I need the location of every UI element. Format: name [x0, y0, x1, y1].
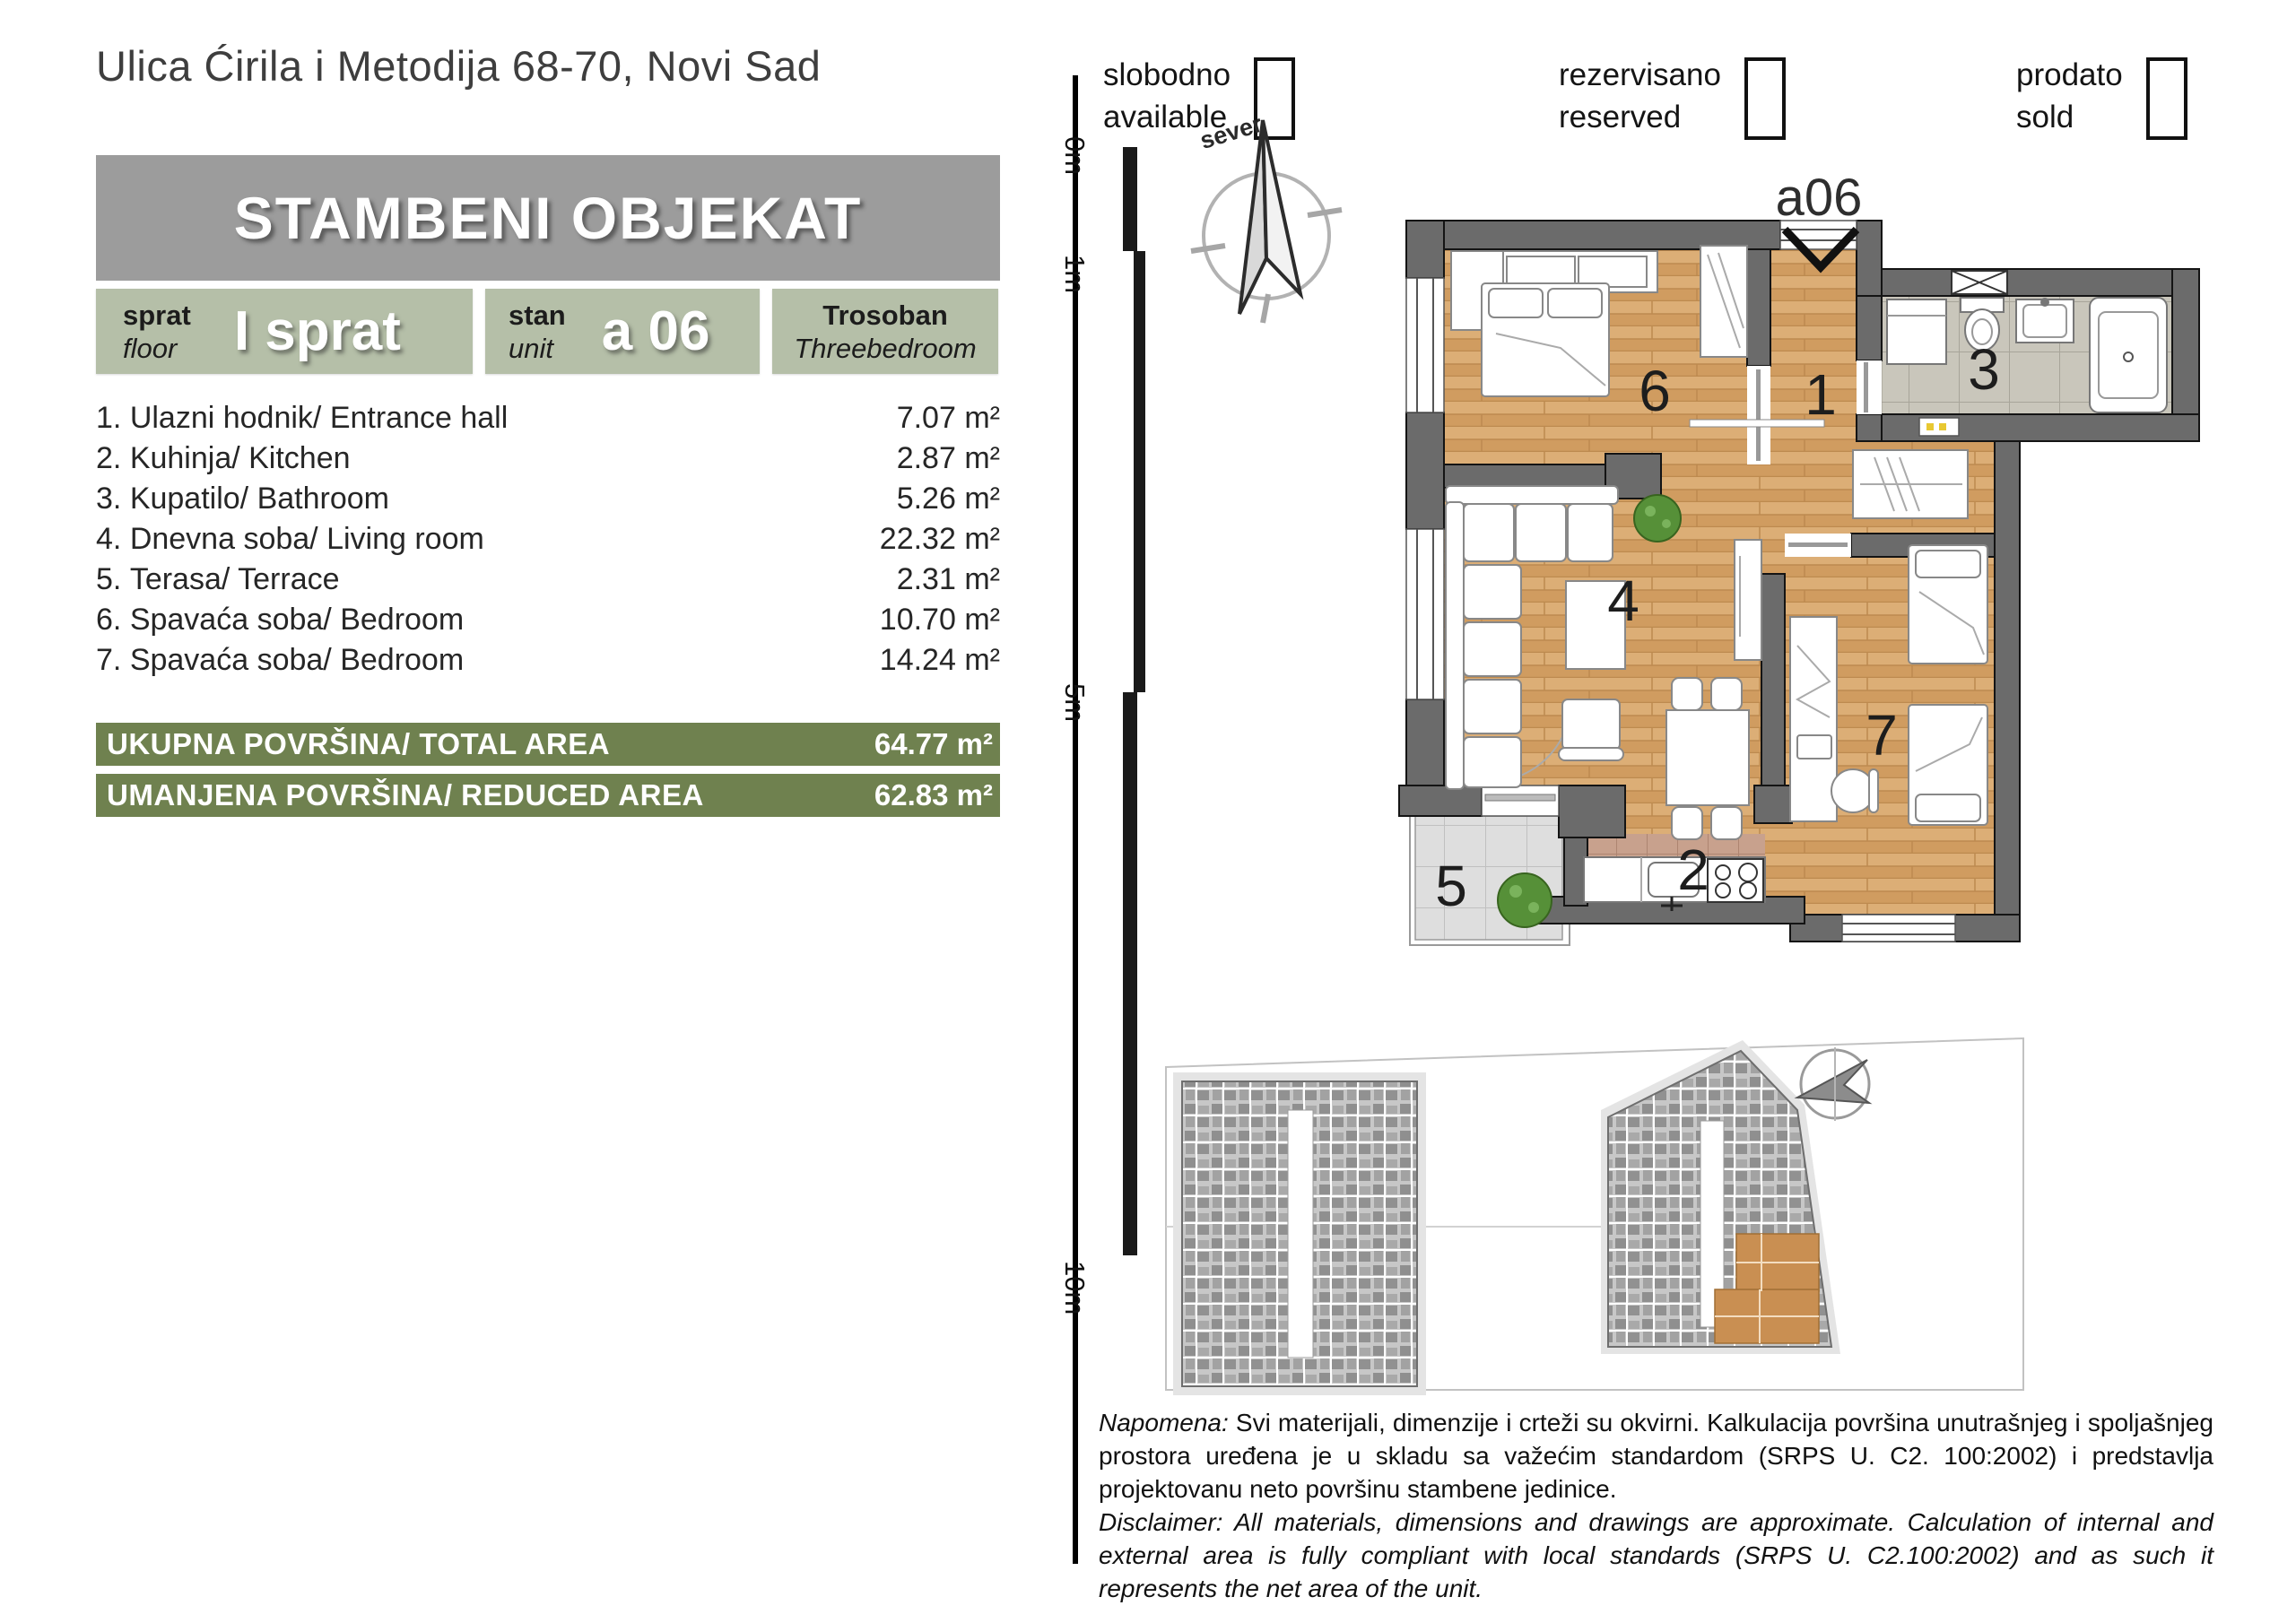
type-badge: Trosoban Threebedroom [772, 289, 998, 374]
floor-plan: a06 1 2 3 4 5 6 7 [1381, 166, 2224, 973]
ruler-bar-segment [1134, 251, 1145, 692]
disclaimer-sr: Napomena: Svi materijali, dimenzije i cr… [1099, 1406, 2213, 1506]
reduced-area-bar: UMANJENA POVRŠINA/ REDUCED AREA 62.83 m² [96, 774, 1000, 817]
site-compass-icon [1797, 1047, 1869, 1121]
total-area-bar: UKUPNA POVRŠINA/ TOTAL AREA 64.77 m² [96, 723, 1000, 766]
legend-reserved: rezervisano reserved [1559, 54, 1786, 140]
legend-sold: prodato sold [2016, 54, 2187, 140]
building-a-corridor [1288, 1110, 1313, 1358]
disclaimer: Napomena: Svi materijali, dimenzije i cr… [1099, 1406, 2213, 1605]
type-label-en: Threebedroom [794, 332, 976, 365]
area-totals: UKUPNA POVRŠINA/ TOTAL AREA 64.77 m² UMA… [96, 723, 1000, 825]
room-row: 3. Kupatilo/ Bathroom 5.26 m² [96, 479, 1000, 519]
room-row: 7. Spavaća soba/ Bedroom 14.24 m² [96, 640, 1000, 681]
room-row: 5. Terasa/ Terrace 2.31 m² [96, 560, 1000, 600]
unit-badge: stan unit a 06 [485, 289, 760, 374]
ruler-bar-segment [1123, 147, 1137, 251]
room-label-6: 6 [1639, 359, 1671, 423]
unit-label-sr: stan [509, 299, 566, 332]
hall-shelf [1853, 450, 1968, 518]
north-compass: sever [1186, 115, 1356, 325]
compass-north-label: sever [1197, 115, 1266, 154]
building-header-label: STAMBENI OBJEKAT [234, 184, 863, 252]
room-label-7: 7 [1865, 703, 1898, 768]
unit-label-en: unit [509, 332, 566, 365]
brochure-page: Ulica Ćirila i Metodija 68-70, Novi Sad … [0, 0, 2296, 1623]
disclaimer-en: Disclaimer: All materials, dimensions an… [1099, 1506, 2213, 1605]
ruler-bar-segment [1123, 692, 1137, 1255]
site-key-plan [1157, 1022, 2215, 1408]
unit-value: a 06 [602, 299, 710, 363]
ruler-label-5m: 5m [1058, 683, 1091, 722]
sold-checkbox [2146, 57, 2187, 140]
ruler-label-0m: 0m [1058, 136, 1091, 175]
room-row: 6. Spavaća soba/ Bedroom 10.70 m² [96, 600, 1000, 640]
ruler-label-10m: 10m [1058, 1261, 1091, 1315]
vertical-divider [1073, 75, 1078, 1564]
compass-needle-right [1263, 120, 1300, 294]
plan-unit-label: a06 [1776, 169, 1863, 227]
room-label-2: 2 [1677, 838, 1709, 902]
floor-value: I sprat [234, 299, 401, 363]
reserved-checkbox [1744, 57, 1786, 140]
building-header: STAMBENI OBJEKAT [96, 155, 1000, 281]
type-label-sr: Trosoban [822, 299, 948, 332]
floor-label-sr: sprat [123, 299, 191, 332]
floor-badge: sprat floor I sprat [96, 289, 473, 374]
ruler-label-1m: 1m [1058, 255, 1091, 293]
room-row: 1. Ulazni hodnik/ Entrance hall 7.07 m² [96, 398, 1000, 438]
room-label-3: 3 [1968, 337, 2000, 402]
room-label-5: 5 [1435, 854, 1467, 918]
page-title: Ulica Ćirila i Metodija 68-70, Novi Sad [96, 41, 1083, 91]
kitchen-furniture [1584, 857, 1765, 911]
room-row: 2. Kuhinja/ Kitchen 2.87 m² [96, 438, 1000, 479]
room-label-1: 1 [1805, 362, 1837, 427]
badge-row: sprat floor I sprat stan unit a 06 Troso… [96, 289, 1000, 374]
room-list: 1. Ulazni hodnik/ Entrance hall 7.07 m² … [96, 398, 1000, 681]
floor-label-en: floor [123, 332, 191, 365]
room-row: 4. Dnevna soba/ Living room 22.32 m² [96, 519, 1000, 560]
room-label-4: 4 [1607, 568, 1639, 633]
